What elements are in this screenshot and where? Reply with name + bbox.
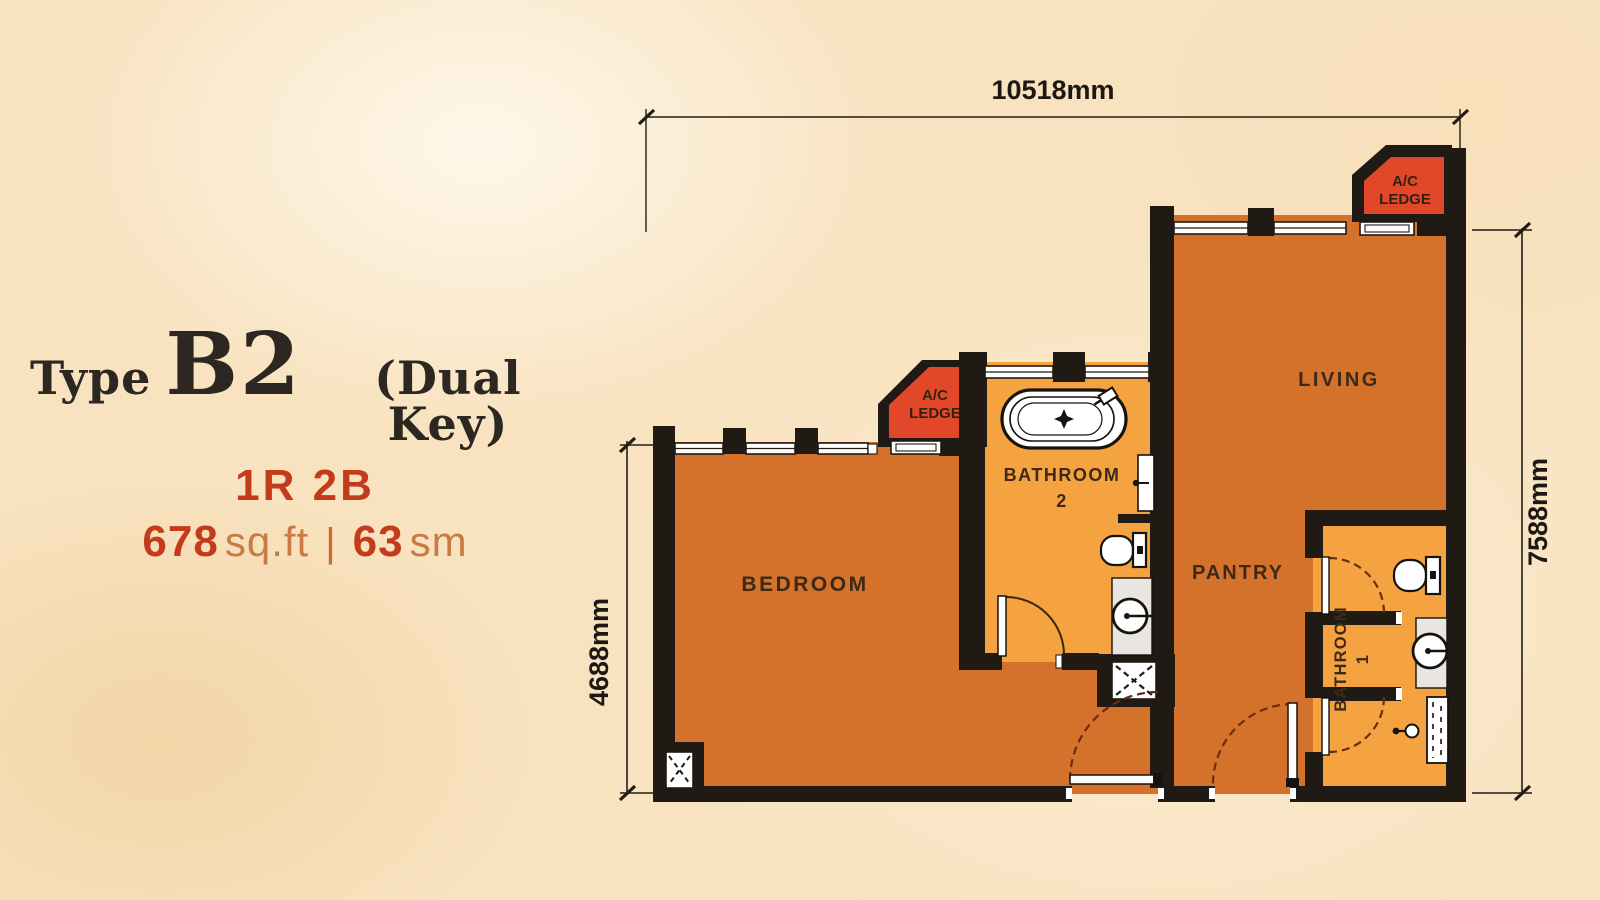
- toilet-bathroom1: [1394, 557, 1440, 594]
- floor-plan: A/C LEDGE A/C LEDGE: [0, 0, 1600, 900]
- svg-text:BATHROOM: BATHROOM: [1332, 606, 1350, 712]
- dimension-top-label: 10518mm: [991, 75, 1114, 105]
- wall-jamb-cap: [1396, 612, 1402, 624]
- toilet-bathroom2: [1101, 533, 1146, 567]
- bedroom-label: BEDROOM: [741, 573, 868, 596]
- sink-bathroom1: [1413, 618, 1449, 688]
- ac-ledge-label-line2: LEDGE: [909, 405, 961, 422]
- pantry-label: PANTRY: [1192, 562, 1284, 584]
- bedroom-corner-shaft: [666, 752, 693, 788]
- dimension-right-label: 7588mm: [1523, 458, 1553, 566]
- svg-text:2: 2: [1056, 491, 1068, 511]
- dimension-left-label: 4688mm: [584, 598, 614, 706]
- ac-ledge-label-line2: LEDGE: [1379, 191, 1431, 208]
- wall-jamb-cap: [1396, 688, 1402, 700]
- ac-ledge-top-right: A/C LEDGE: [1352, 145, 1452, 222]
- bathtub: [1002, 388, 1126, 448]
- svg-text:1: 1: [1354, 654, 1372, 664]
- foyer-shaft: [1112, 662, 1156, 699]
- ac-ledge-label-line1: A/C: [922, 387, 948, 404]
- svg-text:BATHROOM: BATHROOM: [1004, 465, 1121, 485]
- ac-ledge-label-line1: A/C: [1392, 173, 1418, 190]
- living-label: LIVING: [1298, 369, 1380, 391]
- dimension-left: 4688mm: [584, 438, 658, 800]
- living-window-band: [1174, 222, 1414, 235]
- dimension-right: 7588mm: [1472, 223, 1553, 800]
- sink-bathroom2: [1112, 578, 1152, 655]
- dimension-top: 10518mm: [639, 75, 1468, 232]
